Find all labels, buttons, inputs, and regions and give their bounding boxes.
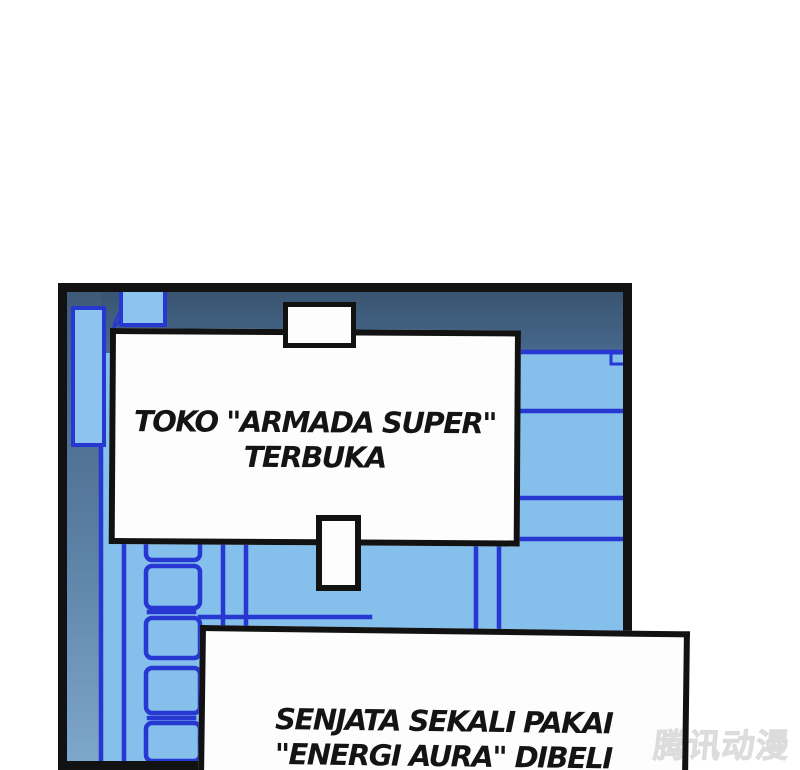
comic-page: TOKO "ARMADA SUPER" TERBUKA SENJATA SEKA… xyxy=(0,0,800,770)
caption-box-shop-open: TOKO "ARMADA SUPER" TERBUKA xyxy=(109,328,521,547)
tencent-comics-watermark: 腾讯动漫 xyxy=(651,719,792,767)
caption-connector-tab-top xyxy=(283,302,356,348)
wall-hatch-left xyxy=(73,308,104,445)
caption-line: SENJATA SEKALI PAKAI xyxy=(275,702,613,741)
caption-line: "ENERGI AURA" DIBELI xyxy=(275,737,612,770)
caption-line: TERBUKA xyxy=(244,440,386,476)
caption-line: TOKO "ARMADA SUPER" xyxy=(134,404,496,441)
caption-connector-tab-bottom xyxy=(316,515,361,591)
caption-box-weapon-purchase: SENJATA SEKALI PAKAI "ENERGI AURA" DIBEL… xyxy=(198,625,690,770)
